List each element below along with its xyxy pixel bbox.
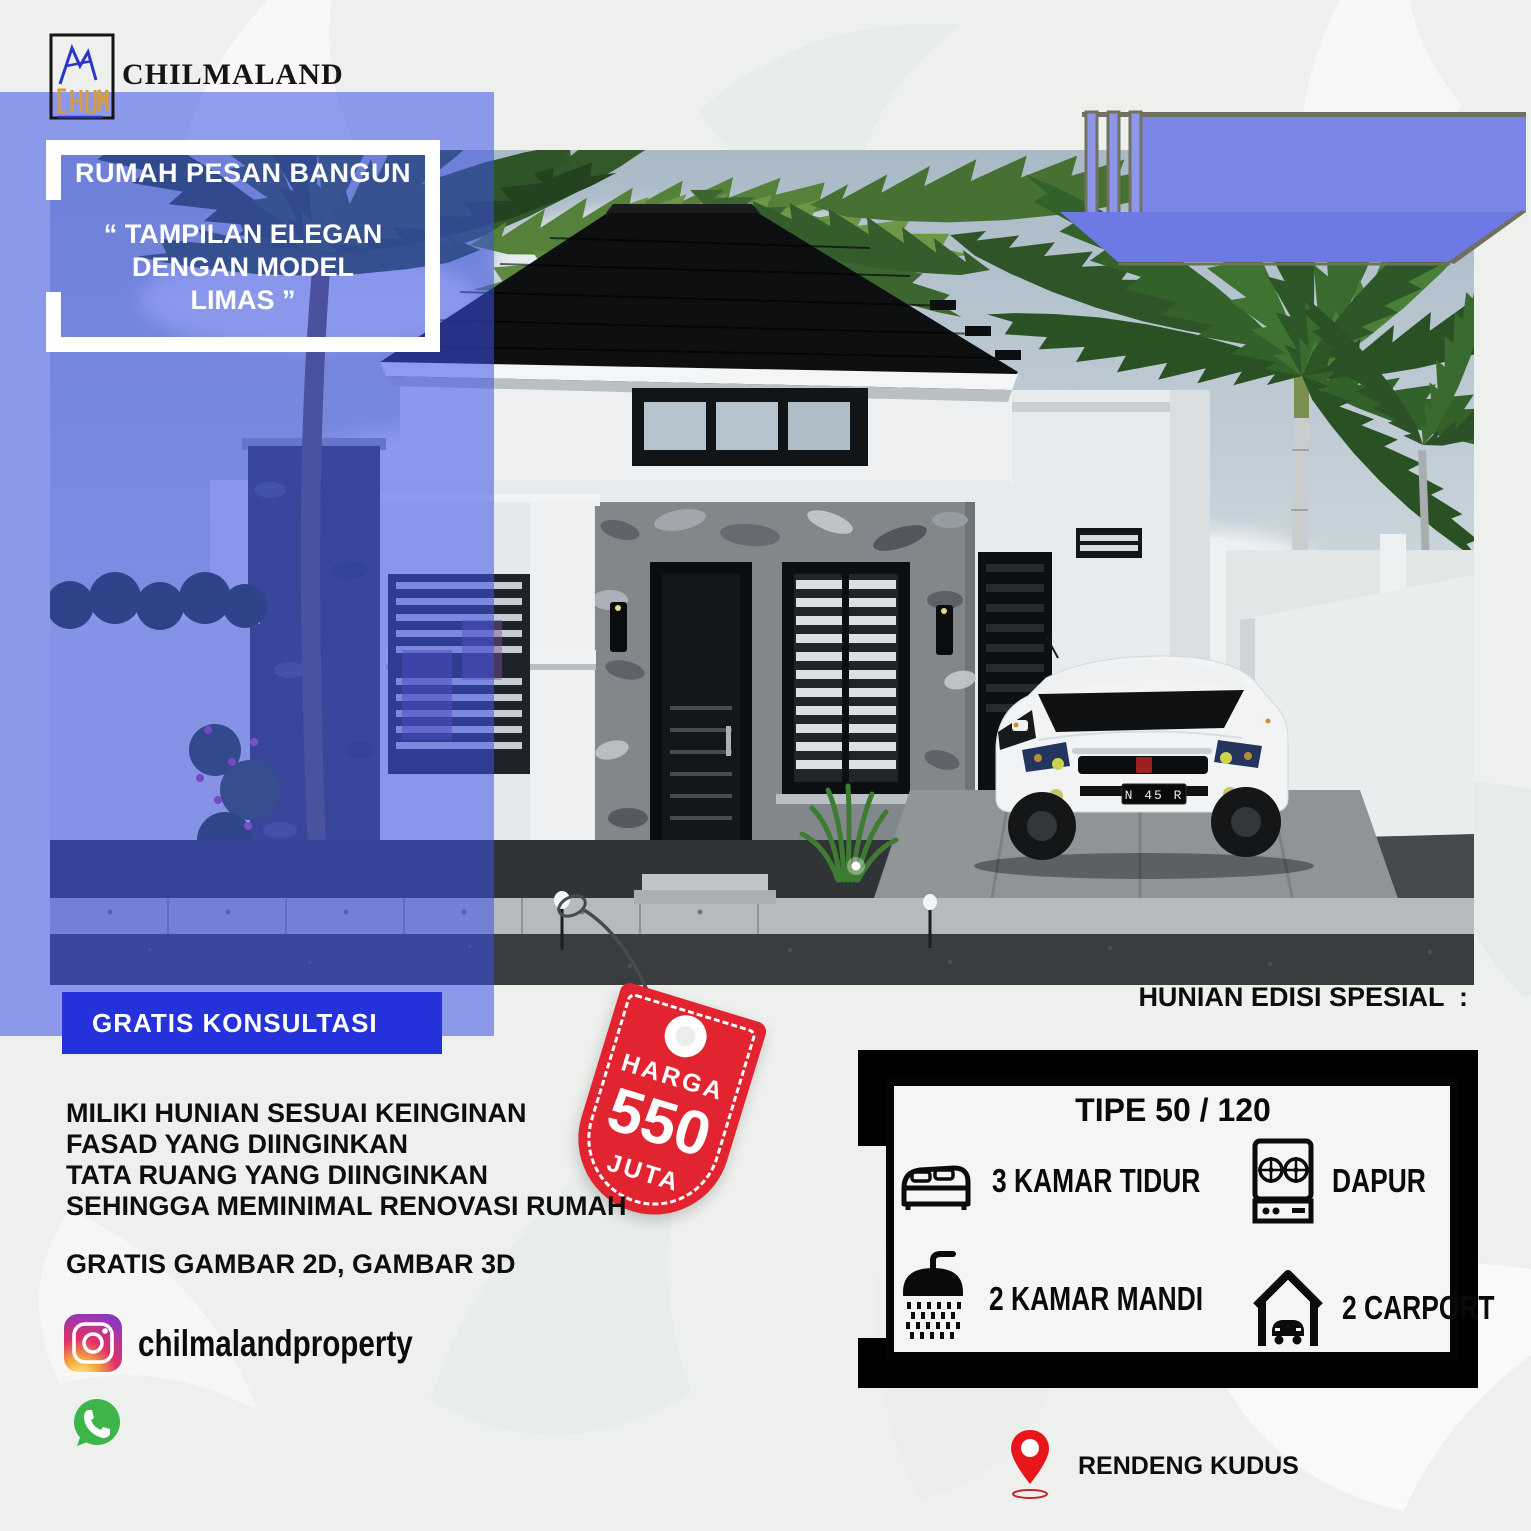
pitch-text: MILIKI HUNIAN SESUAI KEINGINAN FASAD YAN… [66, 1098, 627, 1222]
special-heading: HUNIAN EDISI SPESIAL : [1018, 982, 1468, 1013]
quote-line: “ TAMPILAN ELEGAN [66, 218, 420, 251]
chilmaland-logo-icon [48, 32, 116, 122]
car-license-plate: N 45 R [1125, 788, 1184, 803]
spec-label: 2 KAMAR MANDI [989, 1280, 1203, 1318]
bed-icon [898, 1148, 974, 1214]
spec-item-kitchen: DAPUR [1252, 1136, 1449, 1226]
decorative-banner-icon [1030, 100, 1531, 275]
pitch-line: SEHINGGA MEMINIMAL RENOVASI RUMAH [66, 1191, 627, 1222]
location-pin-icon [1008, 1428, 1054, 1506]
shower-icon [893, 1250, 971, 1348]
spec-label: DAPUR [1332, 1162, 1426, 1200]
whatsapp-icon[interactable] [68, 1396, 124, 1452]
quote-line: DENGAN MODEL [66, 251, 420, 284]
free-offer: GRATIS GAMBAR 2D, GAMBAR 3D [66, 1249, 516, 1280]
spec-label: 2 CARPORT [1342, 1289, 1495, 1327]
pitch-line: TATA RUANG YANG DIINGINKAN [66, 1160, 627, 1191]
pitch-line: FASAD YANG DIINGINKAN [66, 1129, 627, 1160]
spec-item-bedrooms: 3 KAMAR TIDUR [898, 1142, 1252, 1220]
stove-icon [1252, 1138, 1314, 1224]
poster: N 45 R CHILMALAND [0, 0, 1531, 1531]
spec-item-carport: 2 CARPORT [1252, 1262, 1531, 1354]
spec-label: 3 KAMAR TIDUR [992, 1162, 1200, 1200]
instagram-handle[interactable]: chilmalandproperty [138, 1322, 481, 1366]
spec-title: TIPE 50 / 120 [888, 1092, 1458, 1129]
instagram-handle-text: chilmalandproperty [138, 1322, 413, 1366]
quote-text: “ TAMPILAN ELEGAN DENGAN MODEL LIMAS ” [66, 218, 420, 317]
consultation-banner: GRATIS KONSULTASI [62, 992, 442, 1054]
instagram-icon[interactable] [64, 1314, 122, 1372]
carport-icon [1252, 1264, 1324, 1352]
headline: RUMAH PESAN BANGUN [66, 158, 420, 189]
brand-name: CHILMALAND [122, 58, 344, 92]
location-label: RENDENG KUDUS [1078, 1452, 1299, 1481]
quote-line: LIMAS ” [66, 284, 420, 317]
spec-item-bathrooms: 2 KAMAR MANDI [893, 1248, 1257, 1350]
consultation-label: GRATIS KONSULTASI [62, 992, 442, 1054]
pitch-line: MILIKI HUNIAN SESUAI KEINGINAN [66, 1098, 627, 1129]
